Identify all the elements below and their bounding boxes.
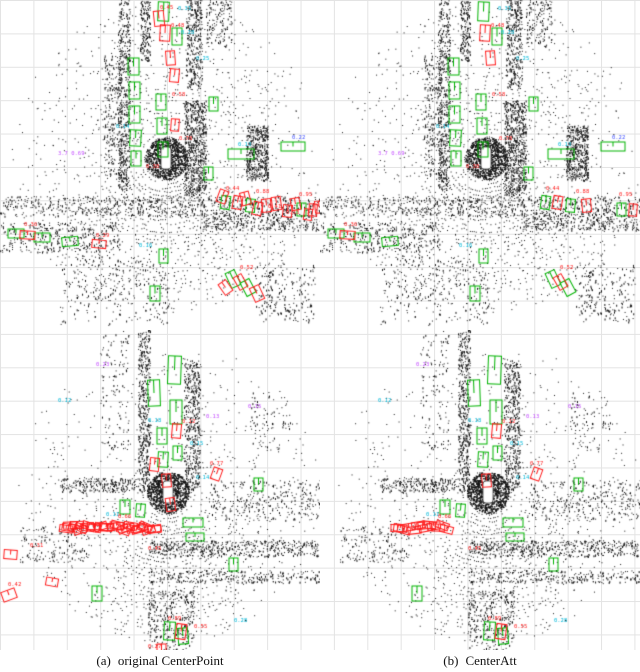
paper-figure: (a)original CenterPoint (b)CenterAtt [0, 0, 640, 672]
caption-a-text: original CenterPoint [118, 653, 224, 668]
caption-a: (a)original CenterPoint [0, 653, 320, 669]
caption-b-text: CenterAtt [465, 653, 516, 668]
caption-b-label: (b) [443, 653, 458, 668]
panel-centeratt-scene2 [320, 330, 640, 650]
caption-a-label: (a) [96, 653, 110, 668]
figure-grid-background [0, 0, 640, 650]
captions-row: (a)original CenterPoint (b)CenterAtt [0, 650, 640, 672]
panel-original-centerpoint-scene1 [0, 0, 320, 330]
panel-centeratt-scene1 [320, 0, 640, 330]
panel-original-centerpoint-scene2 [0, 330, 320, 650]
caption-b: (b)CenterAtt [320, 653, 640, 669]
